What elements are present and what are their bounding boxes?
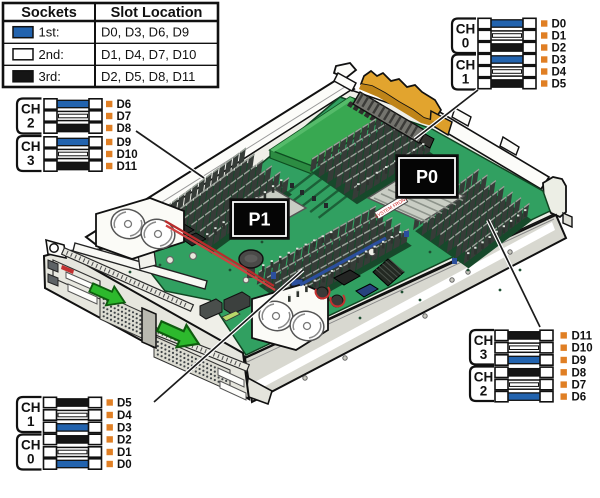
svg-text:CH: CH [21, 438, 41, 453]
svg-text:D0: D0 [552, 19, 567, 31]
svg-text:D1: D1 [117, 447, 132, 459]
svg-text:D4: D4 [552, 67, 567, 79]
svg-text:2: 2 [480, 383, 488, 398]
svg-text:0: 0 [462, 35, 470, 50]
svg-text:CH: CH [21, 400, 41, 415]
svg-text:0: 0 [27, 452, 35, 467]
svg-text:3: 3 [480, 347, 488, 362]
svg-text:CH: CH [21, 139, 41, 154]
svg-text:D5: D5 [552, 79, 567, 91]
svg-text:D11: D11 [572, 330, 593, 342]
svg-text:1: 1 [27, 414, 35, 429]
svg-text:P1: P1 [248, 210, 270, 230]
svg-text:CH: CH [21, 102, 41, 117]
svg-text:D10: D10 [572, 343, 593, 355]
svg-text:D2: D2 [117, 434, 132, 446]
svg-text:CH: CH [474, 369, 494, 384]
svg-text:D6: D6 [117, 99, 132, 111]
svg-text:D8: D8 [572, 367, 587, 379]
svg-text:D5: D5 [117, 398, 132, 410]
svg-text:D0, D3, D6, D9: D0, D3, D6, D9 [101, 25, 189, 40]
svg-text:Sockets: Sockets [21, 5, 77, 21]
svg-text:D3: D3 [552, 55, 567, 67]
svg-text:D2: D2 [552, 43, 567, 55]
svg-text:D0: D0 [117, 459, 132, 471]
svg-text:1: 1 [462, 72, 470, 87]
svg-text:CH: CH [456, 21, 476, 36]
svg-text:D11: D11 [117, 161, 138, 173]
svg-text:D1: D1 [552, 31, 567, 43]
svg-text:3: 3 [27, 153, 35, 168]
svg-text:P0: P0 [416, 167, 438, 187]
svg-text:D9: D9 [117, 137, 132, 149]
svg-text:D8: D8 [117, 123, 132, 135]
svg-text:Slot Location: Slot Location [111, 5, 203, 21]
svg-text:D2, D5, D8, D11: D2, D5, D8, D11 [101, 69, 195, 84]
svg-text:1st:: 1st: [39, 25, 60, 40]
svg-text:D3: D3 [117, 422, 132, 434]
svg-text:CH: CH [474, 333, 494, 348]
svg-text:D9: D9 [572, 355, 587, 367]
svg-text:2: 2 [27, 116, 35, 131]
svg-text:D7: D7 [572, 380, 587, 392]
svg-text:D10: D10 [117, 149, 138, 161]
svg-text:3rd:: 3rd: [39, 69, 61, 84]
svg-text:D7: D7 [117, 111, 132, 123]
svg-text:D1, D4, D7, D10: D1, D4, D7, D10 [101, 47, 196, 62]
svg-text:D4: D4 [117, 410, 132, 422]
svg-text:CH: CH [456, 58, 476, 73]
svg-text:D6: D6 [572, 392, 587, 404]
svg-text:2nd:: 2nd: [39, 47, 64, 62]
